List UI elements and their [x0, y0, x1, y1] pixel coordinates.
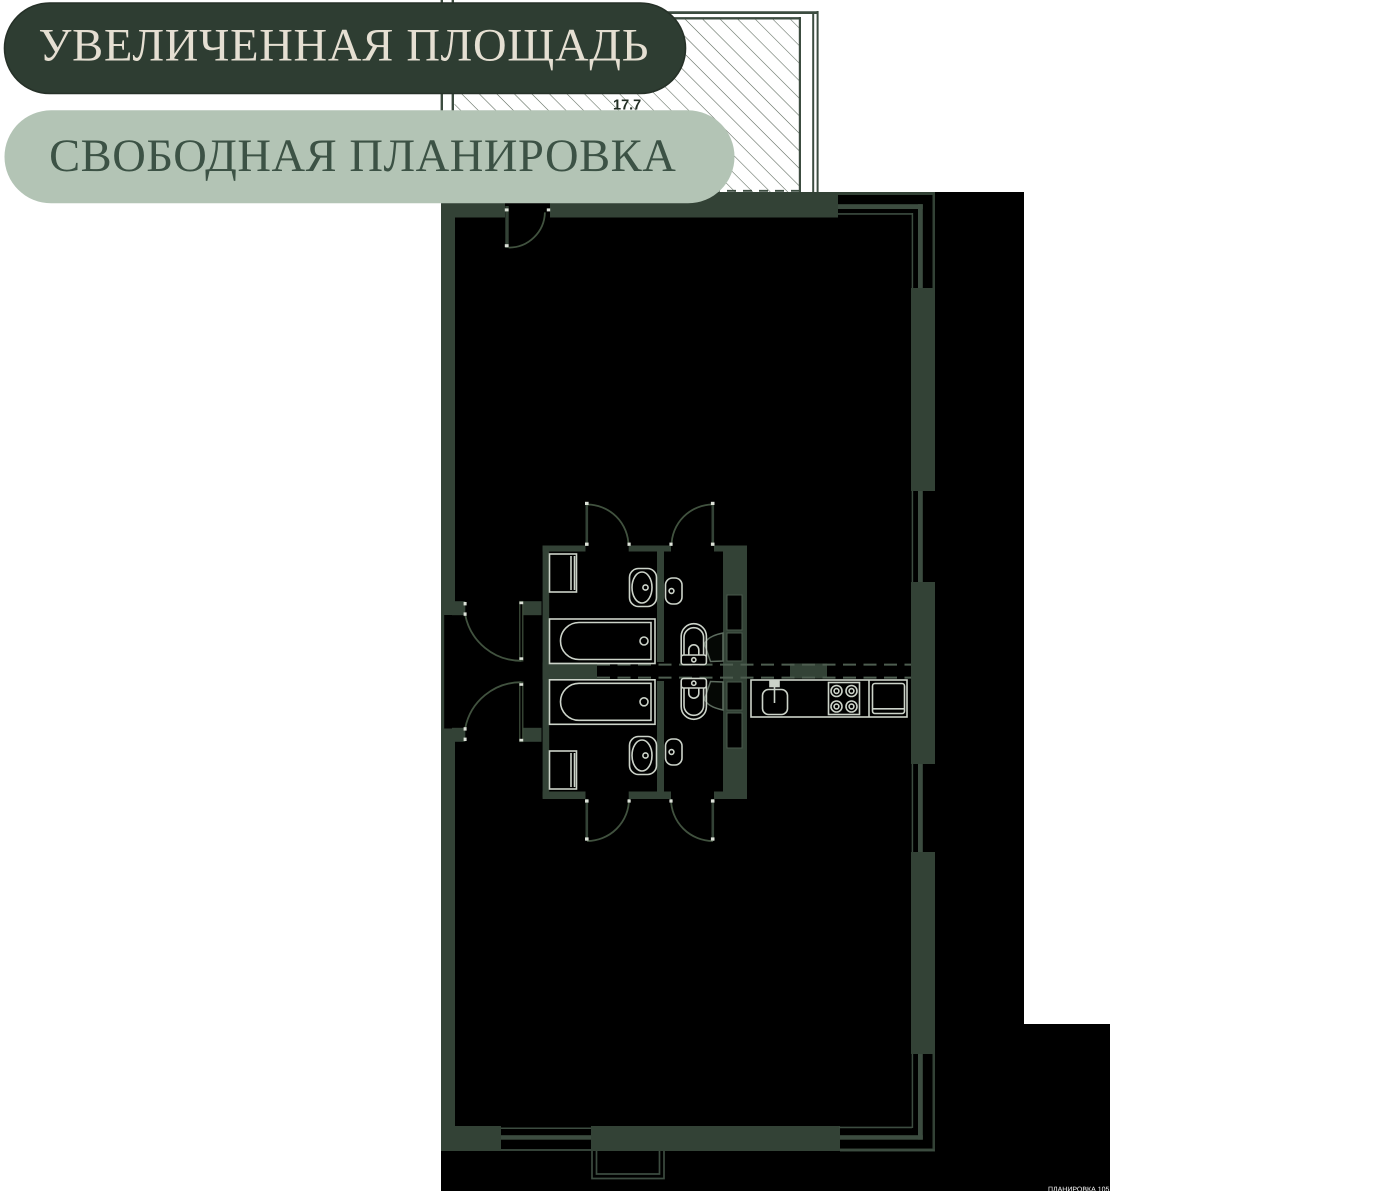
svg-text:ПЛАНИРОВКА 105.3 М2: ПЛАНИРОВКА 105.3 М2 [1048, 1187, 1127, 1191]
svg-text:СВОБОДНАЯ ПЛАНИРОВКА: СВОБОДНАЯ ПЛАНИРОВКА [49, 131, 676, 182]
svg-text:УВЕЛИЧЕННАЯ ПЛОЩАДЬ: УВЕЛИЧЕННАЯ ПЛОЩАДЬ [39, 20, 650, 71]
